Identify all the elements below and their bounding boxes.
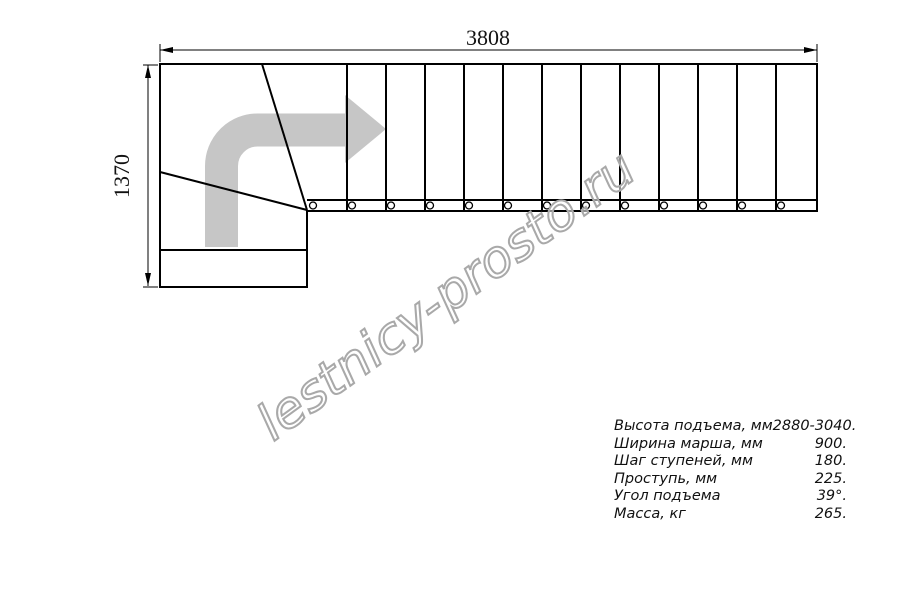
spec-row: Ширина марша, мм900. [614,436,847,454]
drawing-canvas: 3808 1370 lestnicy-prosto.ru Высота подъ… [0,0,900,600]
spec-row: Проступь, мм225. [614,471,847,489]
spec-value: 225. [815,471,847,489]
baluster-circle [661,202,668,209]
baluster-circle [700,202,707,209]
specs-table: Высота подъема, мм2880-3040.Ширина марша… [614,418,847,523]
baluster-circle [622,202,629,209]
spec-label: Ширина марша, мм [614,436,763,454]
spec-value: 900. [815,436,847,454]
dimension-height-label: 1370 [109,154,134,198]
vertical-dimension: 1370 [109,65,158,287]
dim-arrow-right [804,47,817,53]
direction-arrow-shaft [222,130,347,247]
dimension-width-label: 3808 [466,25,510,50]
spec-row: Шаг ступеней, мм180. [614,453,847,471]
baluster-circle [427,202,434,209]
spec-row: Высота подъема, мм2880-3040. [614,418,847,436]
baluster-circle [310,202,317,209]
baluster-circle [388,202,395,209]
spec-label: Масса, кг [614,506,686,524]
spec-row: Угол подъема39°. [614,488,847,506]
baluster-circle [505,202,512,209]
baluster-circle [778,202,785,209]
baluster-circle [739,202,746,209]
spec-label: Проступь, мм [614,471,717,489]
watermark-text: lestnicy-prosto.ru [246,139,646,452]
horizontal-dimension: 3808 [160,25,817,62]
spec-value: 180. [815,453,847,471]
spec-label: Угол подъема [614,488,721,506]
direction-arrow [222,95,387,247]
spec-value: 265. [815,506,847,524]
baluster-circle [349,202,356,209]
dim-arrow-top [145,65,151,78]
dim-arrow-left [160,47,173,53]
baluster-circle [466,202,473,209]
direction-arrow-head [345,95,386,163]
spec-value: 39°. [817,488,847,506]
spec-row: Масса, кг265. [614,506,847,524]
dim-arrow-bottom [145,273,151,286]
spec-label: Высота подъема, мм [614,418,773,436]
spec-value: 2880-3040. [773,418,857,436]
spec-label: Шаг ступеней, мм [614,453,753,471]
